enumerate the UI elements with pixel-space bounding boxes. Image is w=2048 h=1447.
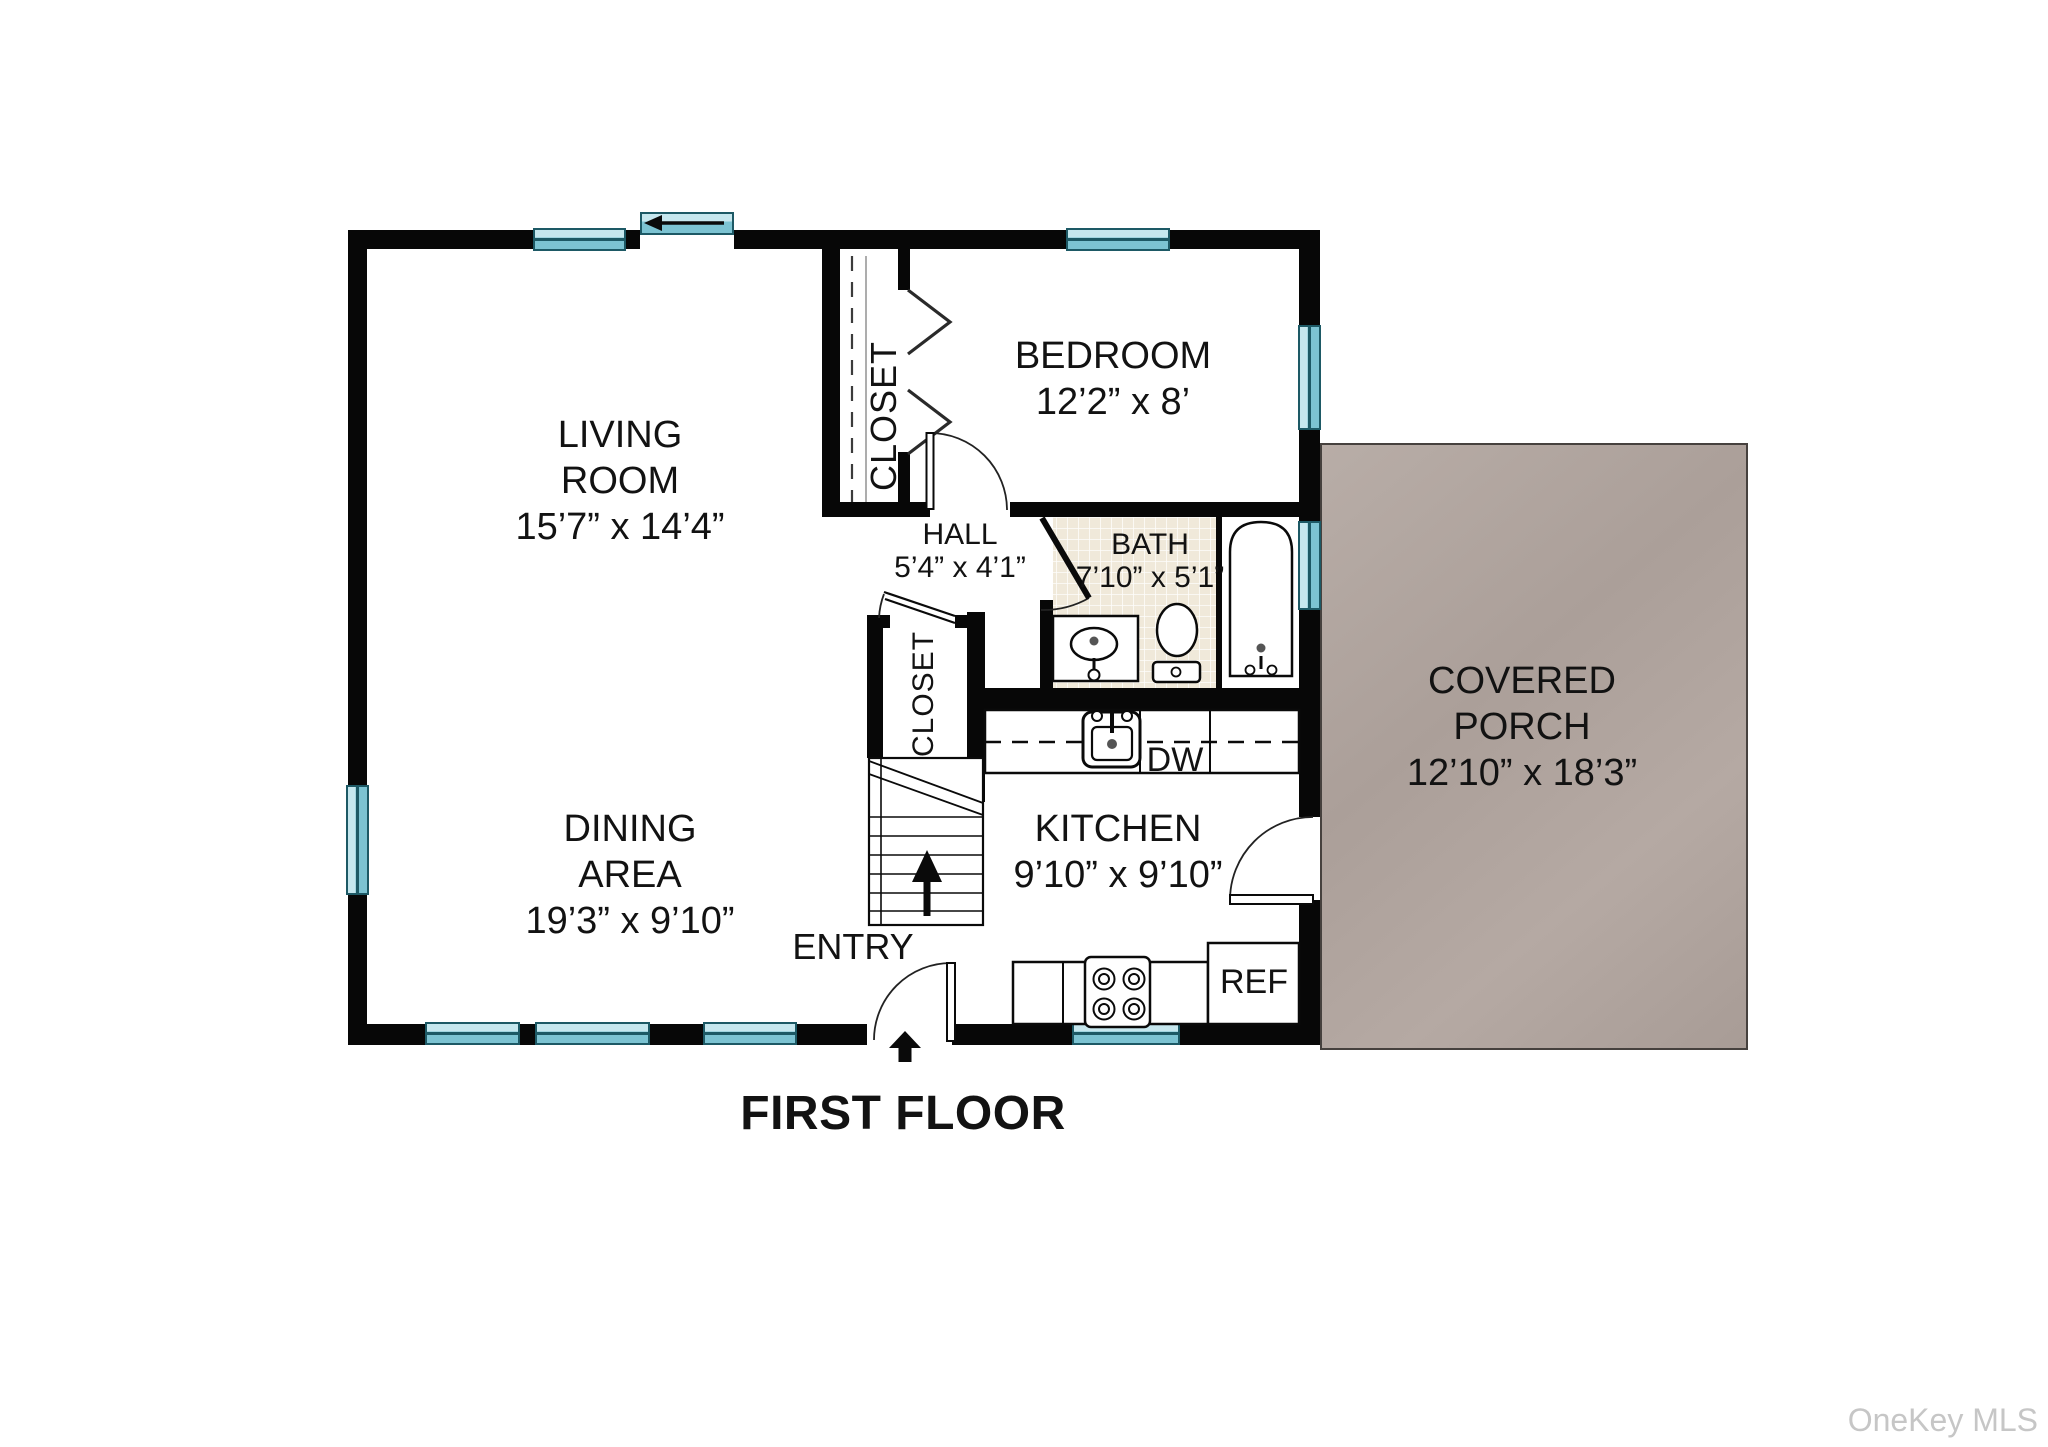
page-title: FIRST FLOOR — [740, 1086, 1065, 1141]
bedroom-name: BEDROOM — [1015, 333, 1211, 379]
living-room-dimensions: 15’7” x 14’4” — [515, 504, 724, 550]
floor-plan: LIVING ROOM 15’7” x 14’4” DINING AREA 19… — [0, 0, 2048, 1447]
bathtub-icon — [1230, 522, 1292, 676]
fixtures-overlay — [0, 0, 2048, 1447]
bedroom-dimensions: 12’2” x 8’ — [1015, 379, 1211, 425]
bedroom-closet-label: CLOSET — [863, 341, 905, 491]
kitchen-counter-top — [985, 710, 1299, 773]
bath-sink-icon — [1053, 616, 1138, 681]
covered-porch-label: COVERED PORCH 12’10” x 18’3” — [1407, 658, 1637, 796]
dining-area-label: DINING AREA 19’3” x 9’10” — [525, 806, 734, 944]
bath-label: BATH 7’10” x 5’1” — [1076, 528, 1224, 594]
kitchen-sink-icon — [1083, 711, 1140, 767]
porch-dimensions: 12’10” x 18’3” — [1407, 750, 1637, 796]
porch-name-1: COVERED — [1407, 658, 1637, 704]
living-room-name-2: ROOM — [515, 458, 724, 504]
bath-name: BATH — [1076, 528, 1224, 561]
kitchen-porch-door — [1230, 817, 1313, 904]
entry-label: ENTRY — [792, 928, 913, 966]
dining-area-name-1: DINING — [525, 806, 734, 852]
porch-name-2: PORCH — [1407, 704, 1637, 750]
hall-dimensions: 5’4” x 4’1” — [894, 551, 1026, 584]
hall-name: HALL — [894, 518, 1026, 551]
hall-label: HALL 5’4” x 4’1” — [894, 518, 1026, 584]
bedroom-closet-bifold-doors — [908, 290, 950, 454]
entry-arrow — [889, 1031, 921, 1062]
bedroom-label: BEDROOM 12’2” x 8’ — [1015, 333, 1211, 425]
living-room-name-1: LIVING — [515, 412, 724, 458]
dining-area-dimensions: 19’3” x 9’10” — [525, 898, 734, 944]
entry-closet-label: CLOSET — [907, 631, 941, 757]
kitchen-dimensions: 9’10” x 9’10” — [1013, 852, 1222, 898]
sliding-door-arrow — [644, 215, 724, 231]
dining-area-name-2: AREA — [525, 852, 734, 898]
entry-door — [874, 963, 955, 1041]
entry-closet-door — [879, 592, 955, 623]
watermark: OneKey MLS — [1848, 1402, 2038, 1439]
bedroom-door — [927, 433, 1008, 510]
stove-icon — [1085, 957, 1150, 1027]
kitchen-label: KITCHEN 9’10” x 9’10” — [1013, 806, 1222, 898]
dishwasher-label: DW — [1147, 742, 1204, 778]
living-room-label: LIVING ROOM 15’7” x 14’4” — [515, 412, 724, 550]
bath-dimensions: 7’10” x 5’1” — [1076, 561, 1224, 594]
refrigerator-label: REF — [1220, 964, 1288, 1000]
toilet-icon — [1153, 604, 1200, 682]
kitchen-name: KITCHEN — [1013, 806, 1222, 852]
